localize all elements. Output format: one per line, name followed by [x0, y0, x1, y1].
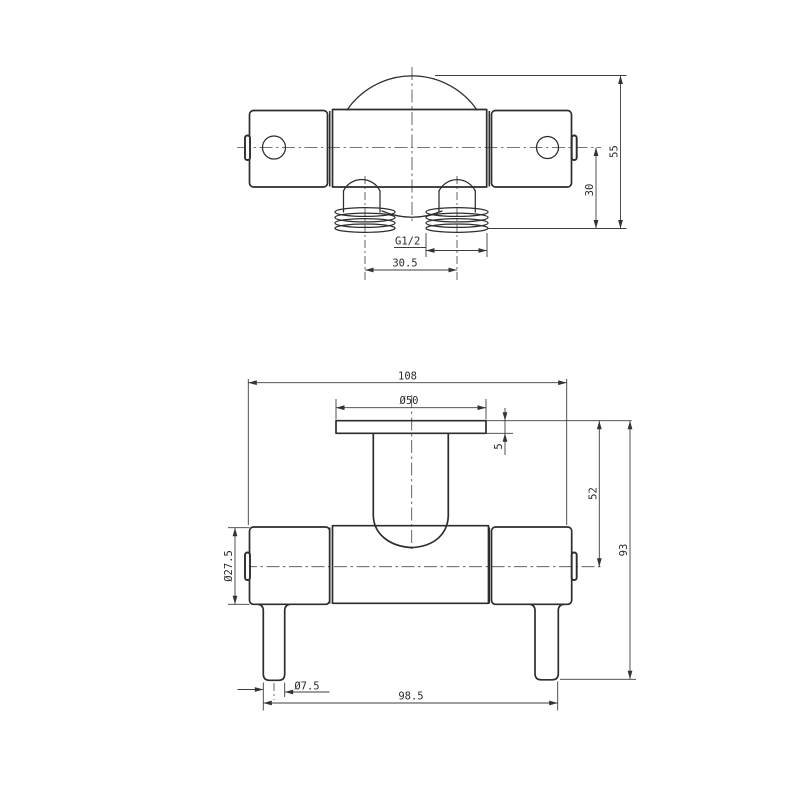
right-handle-block-top — [492, 111, 572, 188]
knob-flange — [336, 421, 486, 434]
dim-text-body-diameter: Ø27.5 — [223, 550, 235, 582]
dim-lever-tip-diameter: Ø7.5 — [238, 681, 330, 711]
dim-text-overall-height: 55 — [609, 145, 621, 158]
dim-overall-height-top-view: 55 — [609, 76, 623, 229]
dim-text-overall-height-front: 93 — [618, 544, 630, 557]
left-lever — [258, 604, 290, 680]
dim-flange-thickness: 5 — [493, 408, 507, 455]
dim-thread-size: G1/2 — [394, 233, 487, 257]
dim-text-center-height: 30 — [584, 184, 596, 197]
dim-line — [394, 248, 487, 251]
right-handle-block-front — [492, 527, 572, 604]
left-handle-block-top — [250, 111, 328, 188]
dim-text-port-spacing: 30.5 — [392, 258, 417, 270]
right-end-tab-front — [572, 553, 577, 581]
left-handle-block-front — [250, 527, 330, 604]
dim-text-upper-height: 52 — [587, 487, 599, 500]
right-lever — [530, 604, 564, 680]
dim-text-thread: G1/2 — [395, 236, 420, 248]
front-view: 108 Ø50 5 — [223, 371, 636, 711]
dim-text-flange-thickness: 5 — [493, 443, 505, 449]
dim-text-overall-width: 108 — [398, 371, 417, 383]
dim-text-lever-span: 98.5 — [398, 691, 423, 703]
dim-text-knob-diameter: Ø50 — [400, 395, 419, 407]
dim-center-height: 30 — [584, 148, 598, 229]
left-end-tab-front — [245, 553, 250, 581]
left-end-tab — [245, 136, 250, 161]
technical-drawing: G1/2 30.5 30 55 — [0, 0, 800, 800]
dim-text-lever-tip-diameter: Ø7.5 — [294, 681, 319, 693]
left-boss-arc — [344, 179, 381, 191]
valve-body-front — [333, 526, 489, 604]
dim-port-spacing: 30.5 — [365, 258, 457, 273]
dim-knob-diameter: Ø50 — [336, 395, 486, 420]
top-view: G1/2 30.5 30 55 — [237, 67, 627, 281]
dim-ext-lines — [426, 233, 487, 257]
dim-upper-height: 52 — [587, 421, 601, 567]
drawing-canvas: G1/2 30.5 30 55 — [0, 0, 800, 800]
valve-body-top — [333, 110, 487, 188]
dim-overall-width: 108 — [248, 371, 566, 526]
knob-stem — [373, 433, 448, 547]
right-end-tab — [572, 136, 577, 161]
